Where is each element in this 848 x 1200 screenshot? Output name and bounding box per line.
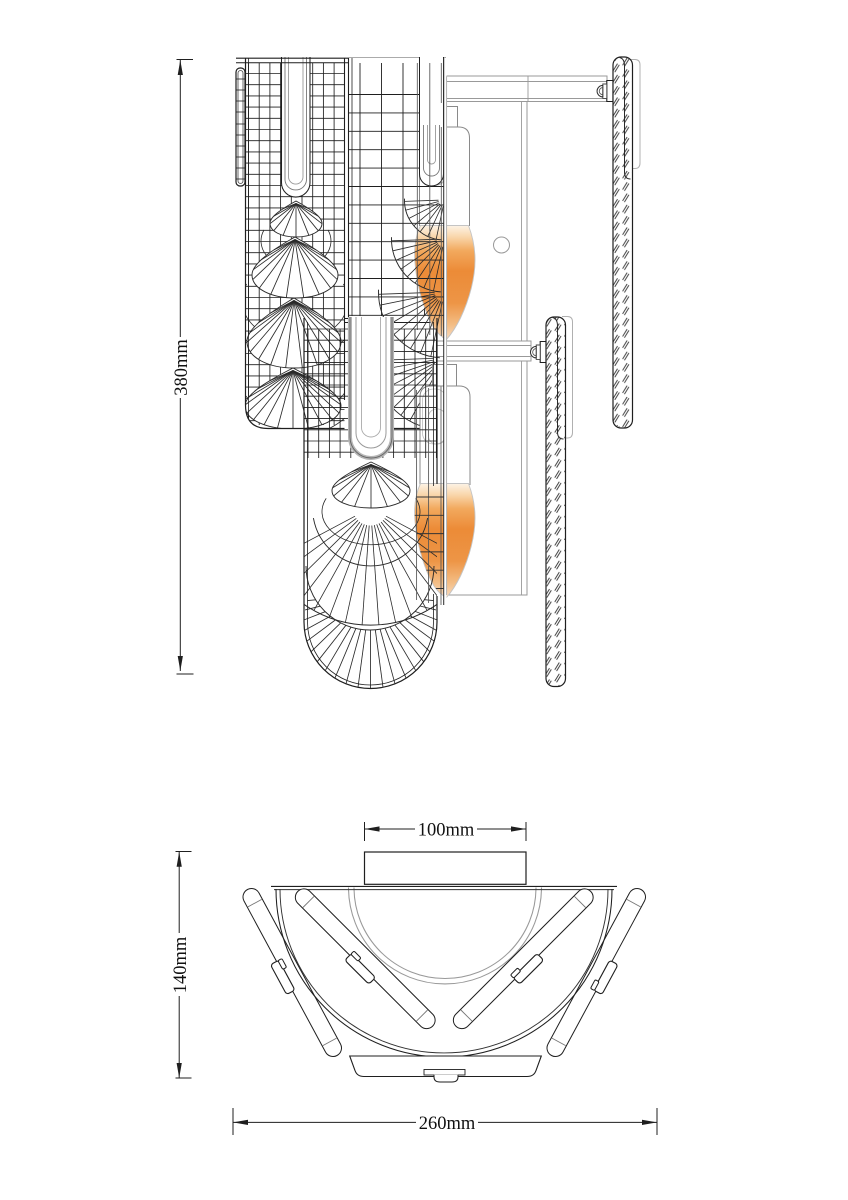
svg-text:100mm: 100mm (418, 821, 475, 841)
svg-text:260mm: 260mm (419, 1114, 476, 1134)
svg-text:140mm: 140mm (171, 936, 191, 993)
svg-text:380mm: 380mm (172, 339, 192, 396)
